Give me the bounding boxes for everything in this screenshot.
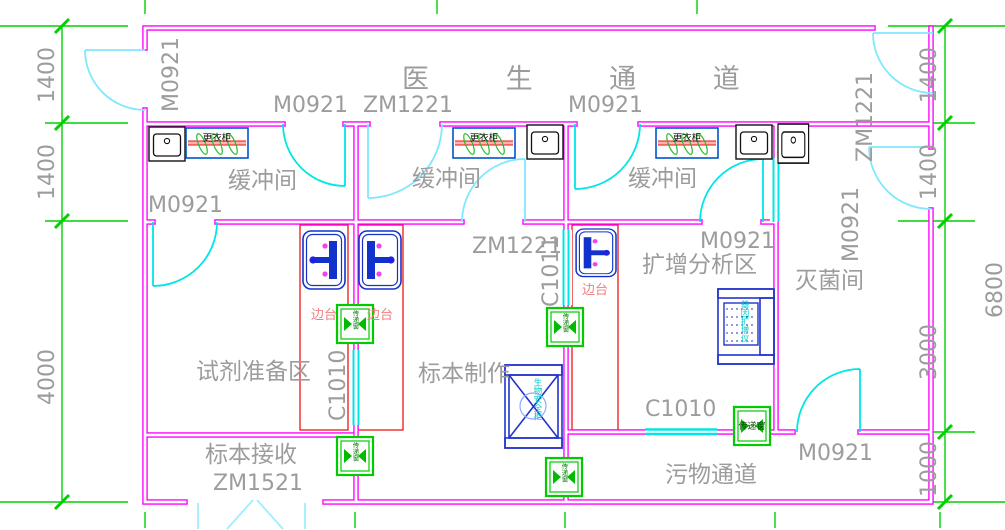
bench-label-3: 边台 [582, 283, 608, 298]
door-label-amplification: M0921 [700, 229, 775, 254]
room-label-reagent: 试剂准备区 [196, 359, 311, 385]
window-label-c1010-left: C1010 [326, 350, 351, 421]
dim-overall: 6800 [983, 262, 1005, 318]
instrument-reagent [303, 231, 345, 289]
window-label-c1010-bottom: C1010 [645, 397, 716, 422]
room-label-specimen: 标本制作 [418, 361, 510, 387]
door-label-buffer1-lab: M0921 [148, 193, 223, 218]
room-label-sterilization: 灭菌间 [795, 268, 864, 294]
room-label-receiving: 标本接收 [205, 442, 297, 468]
door-label-buffer3-entry: M0921 [568, 93, 643, 118]
bench-label-2: 边台 [367, 308, 393, 323]
dim-left-1: 1400 [35, 47, 60, 103]
door-label-receiving: ZM1521 [213, 471, 303, 496]
corridor-doctor-label: 医 生 通 道 [402, 64, 774, 95]
dim-left-2: 1400 [35, 144, 60, 200]
sink-sterilization [778, 124, 809, 163]
wardrobe-label-3: 更衣柜 [673, 132, 702, 144]
window-sterilization [770, 158, 782, 222]
room-label-amplification: 扩增分析区 [642, 252, 757, 278]
biosafety-cabinet-label: 生物安全柜 [532, 377, 542, 421]
floorplan-canvas[interactable]: 更衣柜 更衣柜 更衣柜 生物安全柜 [0, 0, 1005, 530]
door-waste-side [797, 369, 860, 432]
window-c1010-bottom [645, 427, 717, 437]
door-left-exit [85, 50, 145, 110]
pcr-instrument-label: 基因扩增仪 [739, 299, 749, 342]
pass-window-4-label: 传递窗 [560, 462, 568, 484]
door-label-sterilization: M0921 [839, 187, 864, 262]
door-receiving-double [198, 500, 305, 529]
pass-window-1-label: 传递窗 [351, 309, 359, 331]
room-label-buffer3: 缓冲间 [628, 166, 697, 192]
window-label-c1011: C1011 [539, 236, 564, 307]
pass-window-2-label: 传递窗 [561, 312, 569, 334]
wardrobe-label-1: 更衣柜 [203, 132, 232, 144]
corridor-waste-label: 污物通道 [665, 462, 757, 488]
sink-buffer1 [149, 127, 185, 161]
door-label-left-exit: M0921 [159, 37, 184, 112]
room-label-buffer1: 缓冲间 [228, 168, 297, 194]
instrument-amplification [576, 229, 616, 277]
door-label-buffer1-entry: M0921 [273, 93, 348, 118]
door-buffer1-lab [153, 222, 217, 286]
sink-buffer2 [527, 125, 563, 159]
instrument-specimen [359, 231, 401, 289]
door-buffer3-lab [700, 159, 763, 222]
dim-right-2: 1400 [917, 144, 942, 200]
door-label-waste-side: M0921 [798, 441, 873, 466]
dim-right-3: 3000 [917, 324, 942, 380]
pcr-lab-floorplan: 更衣柜 更衣柜 更衣柜 生物安全柜 [0, 0, 1005, 530]
wardrobe-label-2: 更衣柜 [470, 132, 499, 144]
room-label-buffer2: 缓冲间 [412, 166, 481, 192]
door-label-buffer2-entry: ZM1221 [363, 93, 453, 118]
pass-window-5-label: 传递窗 [738, 420, 765, 432]
door-label-right-exit-top: ZM1221 [853, 72, 878, 162]
window-c1010-left [350, 350, 362, 425]
walls [145, 28, 931, 502]
dim-right-1: 1400 [917, 47, 942, 103]
pass-window-3-label: 传递窗 [351, 441, 359, 463]
dim-left-3: 4000 [35, 349, 60, 405]
dim-right-4: 1000 [917, 441, 942, 497]
sink-buffer3 [736, 125, 772, 159]
bench-label-1: 边台 [311, 308, 337, 323]
